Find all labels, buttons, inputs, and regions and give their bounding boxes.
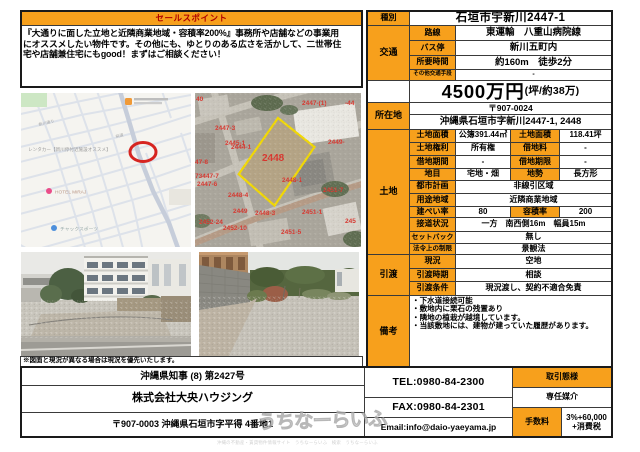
svg-text:レンタカー【新川停付近施設オススメ】: レンタカー【新川停付近施設オススメ】	[28, 146, 111, 153]
svg-text:チャックスポーツ: チャックスポーツ	[60, 226, 98, 233]
svg-text:HOTEL MiRAJ: HOTEL MiRAJ	[55, 190, 87, 196]
